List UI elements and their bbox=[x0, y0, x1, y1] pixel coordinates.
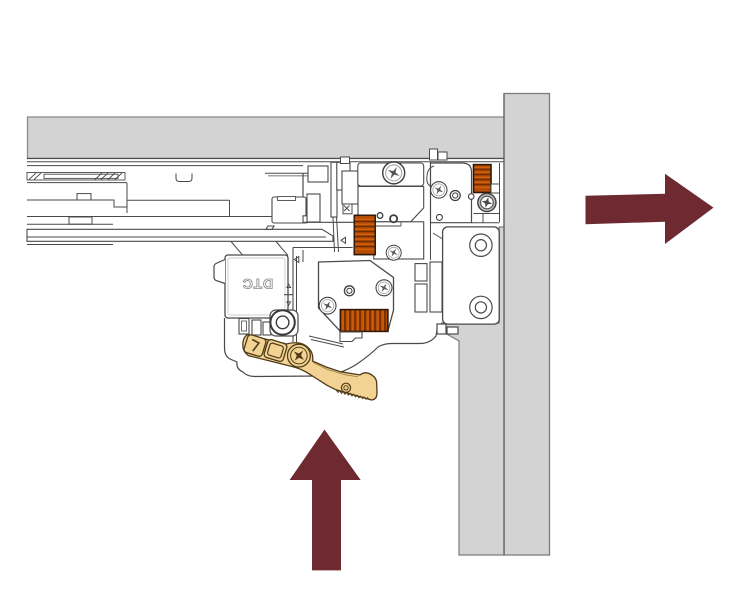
svg-text:DTC: DTC bbox=[242, 276, 273, 292]
